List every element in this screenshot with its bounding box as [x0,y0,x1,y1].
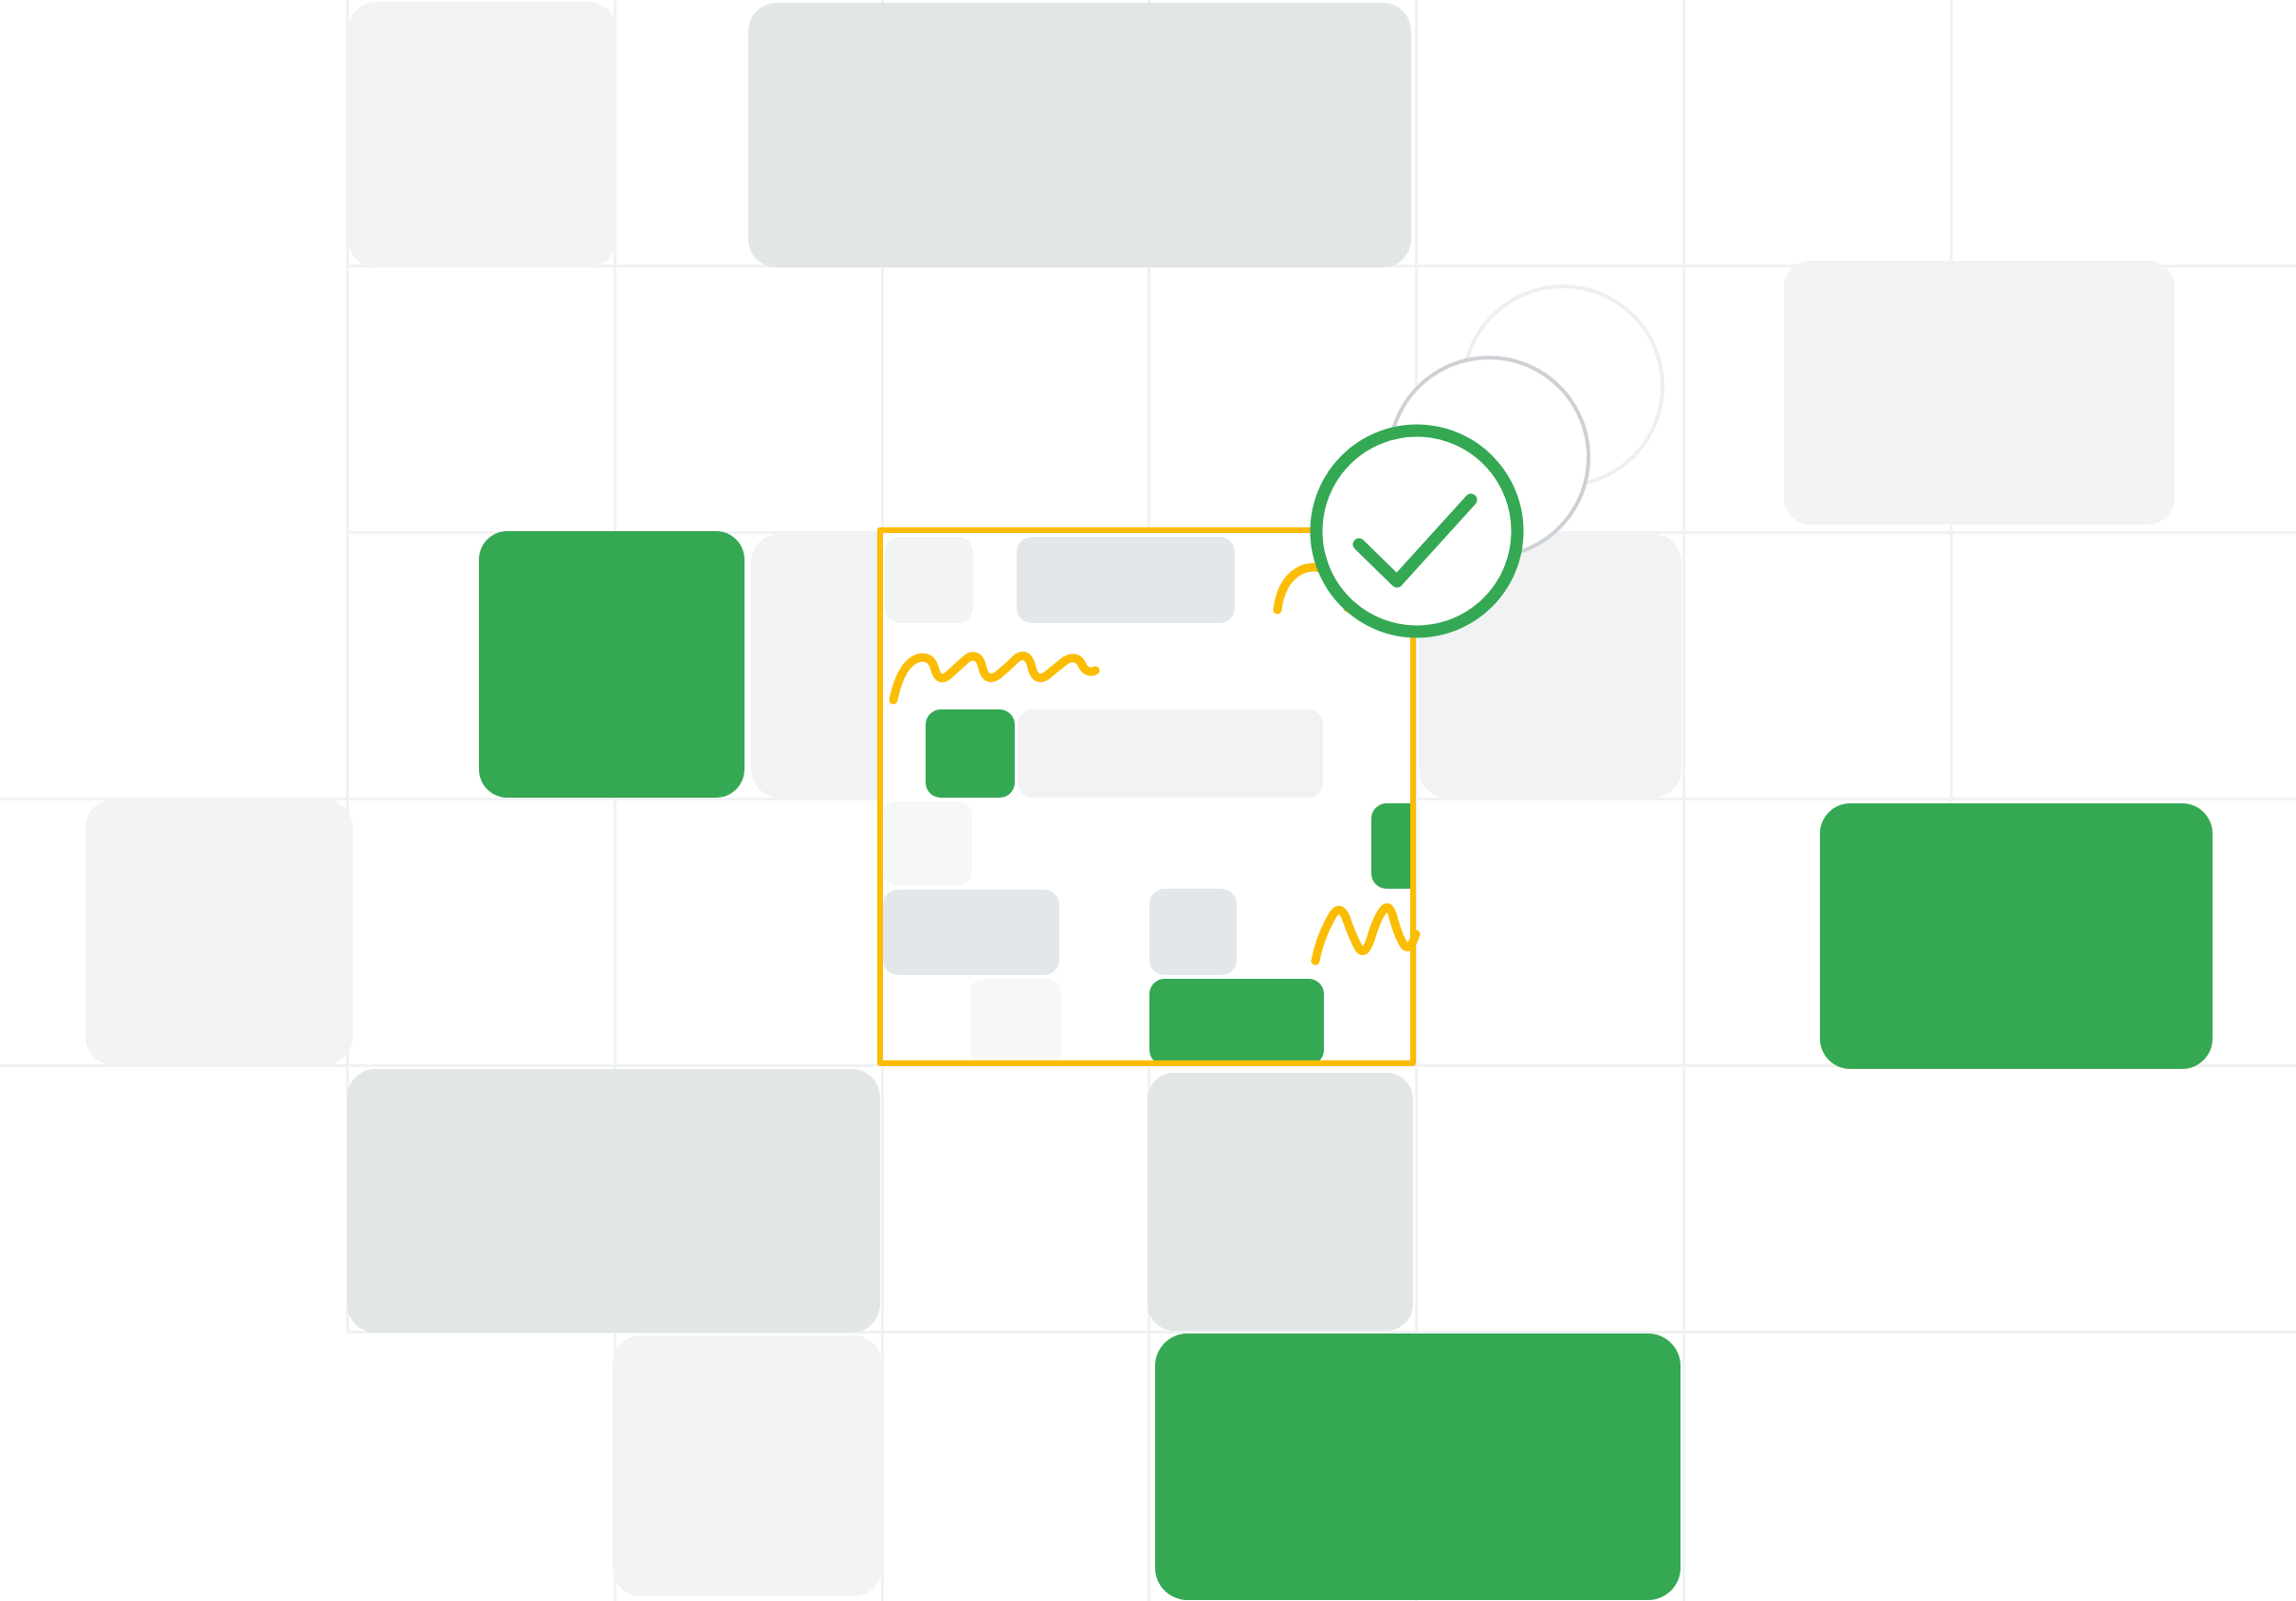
selection-box-border [877,527,1416,1066]
illustration-canvas [0,0,2296,1601]
